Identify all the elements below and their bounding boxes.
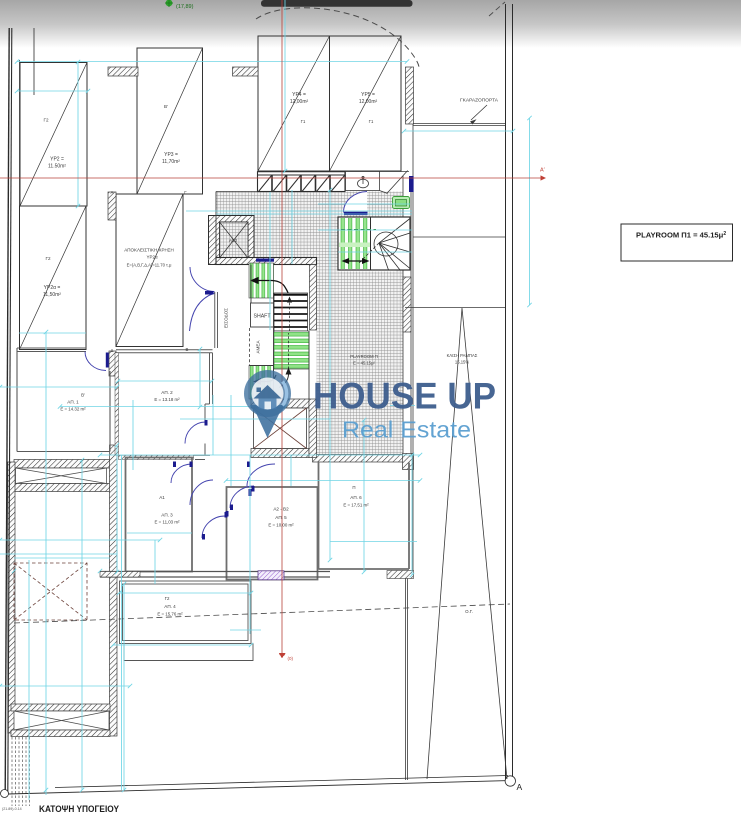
svg-text:Ε=(Α,Β,Γ,Δ,Α)=11.70 τ.μ: Ε=(Α,Β,Γ,Δ,Α)=11.70 τ.μ (127, 263, 172, 268)
svg-text:Γ2: Γ2 (165, 596, 170, 601)
svg-text:Ε = 13.18 m²: Ε = 13.18 m² (154, 397, 180, 402)
svg-text:Real Estate: Real Estate (342, 417, 471, 443)
svg-text:Γ1: Γ1 (301, 119, 306, 124)
svg-text:12,00m²: 12,00m² (359, 99, 378, 105)
svg-text:ΑΠ. 3: ΑΠ. 3 (161, 513, 173, 518)
svg-text:Α′: Α′ (540, 168, 545, 174)
svg-text:Ε = 14.32 m²: Ε = 14.32 m² (60, 407, 86, 412)
svg-text:ΑΠ. 5: ΑΠ. 5 (275, 515, 287, 520)
svg-text:Α2 - Β2: Α2 - Β2 (273, 507, 289, 512)
svg-text:Ε = 11,03 m²: Ε = 11,03 m² (155, 520, 180, 525)
svg-text:(17,89): (17,89) (176, 4, 194, 10)
svg-text:ΚΛΙΣΗ ΡΑΜΠΑΣ: ΚΛΙΣΗ ΡΑΜΠΑΣ (447, 353, 478, 358)
svg-text:Γ2: Γ2 (43, 118, 49, 123)
svg-text:ΥΡ5 =: ΥΡ5 = (361, 92, 375, 98)
svg-text:11,70m²: 11,70m² (162, 159, 180, 165)
svg-text:ΑΠ. 2: ΑΠ. 2 (161, 390, 173, 395)
svg-text:PLAYROOM Π1 = 45.15μ2: PLAYROOM Π1 = 45.15μ2 (636, 231, 726, 240)
svg-text:Γ2: Γ2 (45, 256, 51, 261)
svg-text:SHAFT: SHAFT (253, 314, 271, 320)
svg-text:Ο.Γ.: Ο.Γ. (465, 609, 473, 614)
svg-text:HOUSE UP: HOUSE UP (313, 376, 496, 417)
svg-text:Β′: Β′ (81, 393, 85, 398)
svg-text:Α: Α (111, 190, 114, 195)
svg-text:ΥΡ2α: ΥΡ2α (146, 255, 158, 260)
svg-text:ΕΙΣΟΔΟΣ: ΕΙΣΟΔΟΣ (224, 308, 229, 328)
svg-text:Π: Π (352, 485, 355, 490)
svg-text:Β′: Β′ (164, 104, 168, 109)
svg-text:(21.89)-0.14: (21.89)-0.14 (2, 807, 22, 811)
svg-text:Γ1: Γ1 (369, 119, 374, 124)
svg-text:Δ: Δ (111, 348, 114, 353)
svg-text:Ε = 15,76 m²: Ε = 15,76 m² (157, 612, 183, 617)
svg-text:ΚΑΤΟΨΗ ΥΠΟΓΕΙΟΥ: ΚΑΤΟΨΗ ΥΠΟΓΕΙΟΥ (39, 804, 120, 814)
svg-text:ΑΠΟΚΛΕΙΣΤΙΚΗ ΧΡΗΣΗ: ΑΠΟΚΛΕΙΣΤΙΚΗ ΧΡΗΣΗ (124, 248, 174, 253)
svg-text:Ε = 17,51 m²: Ε = 17,51 m² (343, 503, 369, 508)
svg-text:12,00m²: 12,00m² (290, 99, 309, 105)
svg-text:Α1: Α1 (159, 495, 165, 500)
svg-text:ΥΡ2 =: ΥΡ2 = (50, 157, 64, 163)
svg-text:Ε = 10,00 m²: Ε = 10,00 m² (268, 523, 294, 528)
svg-text:11,50m²: 11,50m² (43, 292, 61, 298)
svg-text:A: A (517, 782, 523, 792)
svg-text:ΑΠ. 4: ΑΠ. 4 (164, 604, 176, 609)
svg-text:Β: Β (186, 347, 189, 352)
svg-text:ΑΠ. 1: ΑΠ. 1 (67, 400, 79, 405)
svg-text:ΥΡ2α =: ΥΡ2α = (44, 285, 61, 291)
svg-text:Ε = 45.15μ²: Ε = 45.15μ² (353, 361, 375, 366)
svg-text:(0): (0) (288, 656, 294, 661)
svg-text:ΑΦ2: ΑΦ2 (229, 238, 238, 243)
svg-text:ΑΜΕΑ: ΑΜΕΑ (256, 340, 261, 354)
svg-text:ΥΡ3 =: ΥΡ3 = (164, 152, 178, 158)
svg-text:PLAYROOM Π: PLAYROOM Π (350, 354, 378, 359)
svg-text:15,15%: 15,15% (455, 360, 469, 365)
svg-text:11.50m²: 11.50m² (48, 164, 66, 170)
svg-text:ΓΚΑΡΑΖΟΠΟΡΤΑ: ΓΚΑΡΑΖΟΠΟΡΤΑ (460, 98, 499, 104)
svg-text:ΥΡ4 =: ΥΡ4 = (292, 92, 306, 98)
svg-text:ΑΠ. 6: ΑΠ. 6 (350, 495, 362, 500)
